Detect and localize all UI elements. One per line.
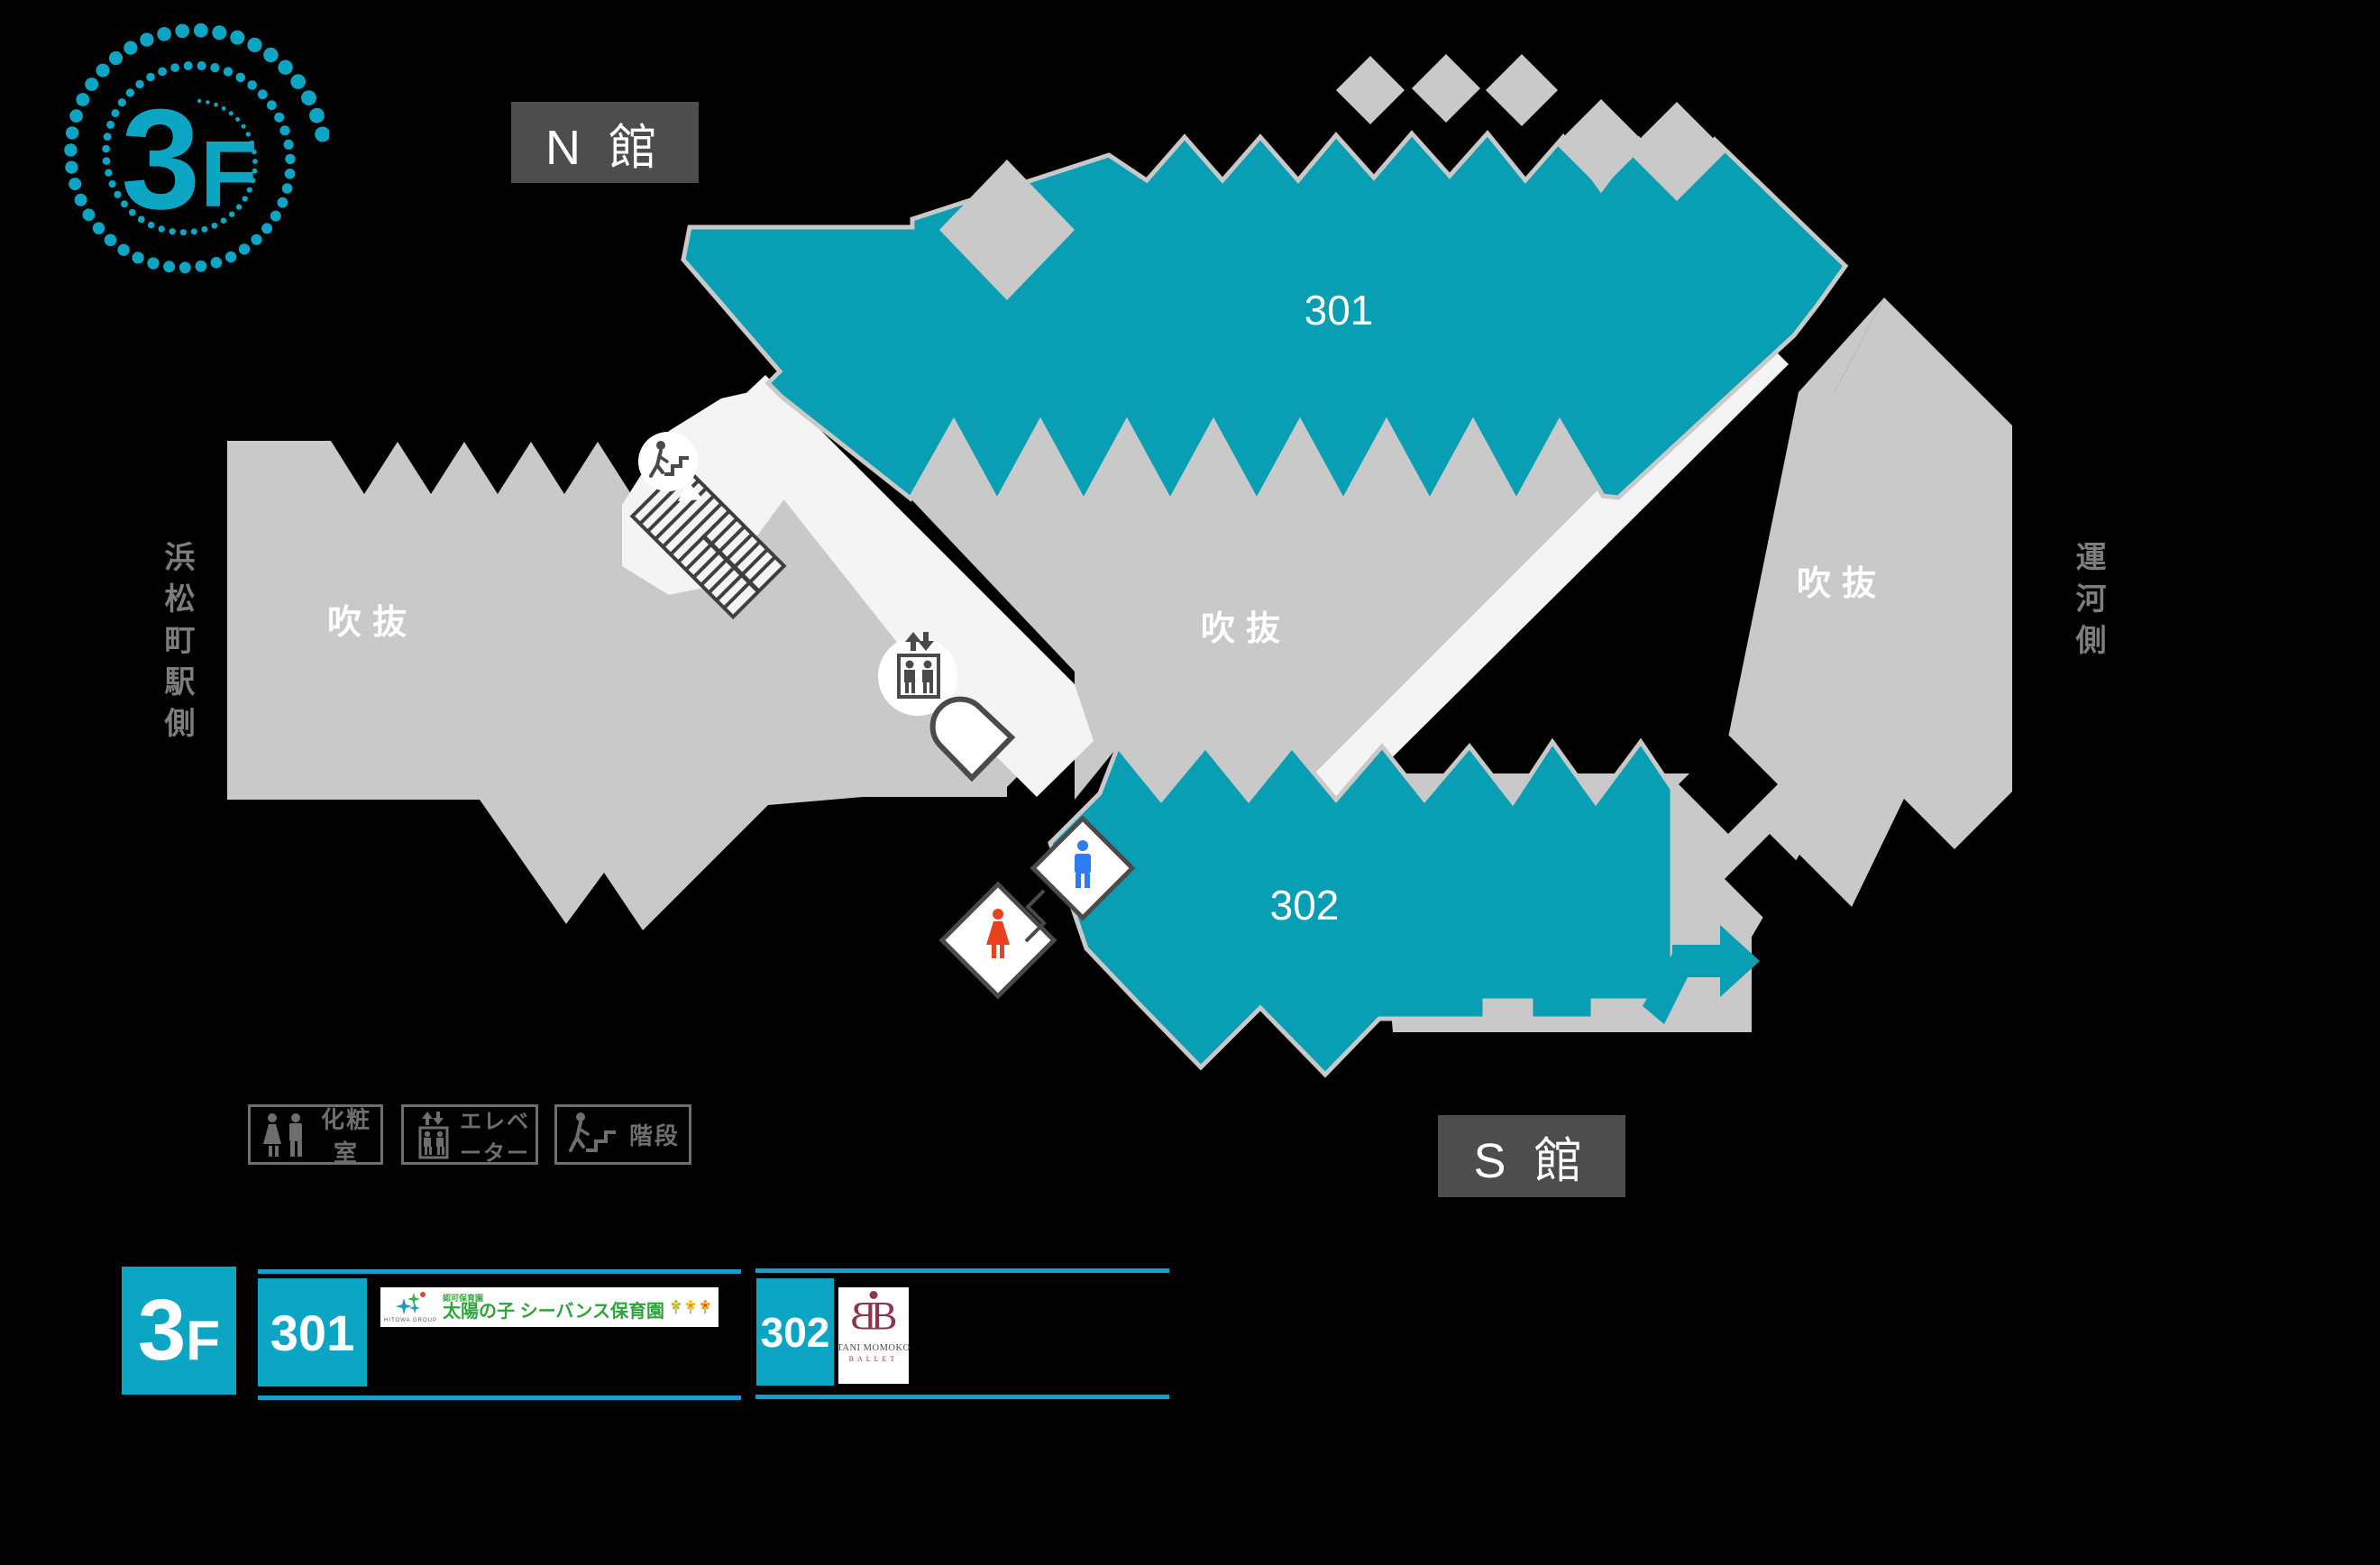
station-side-label: 浜松町駅側 xyxy=(155,541,199,748)
monogram-dot xyxy=(870,1291,878,1299)
directory-floor-suffix: F xyxy=(186,1313,220,1369)
divider xyxy=(258,1396,741,1400)
legend-stairs-label: 階段 xyxy=(620,1118,689,1151)
canal-side-label: 運河側 xyxy=(2066,541,2110,665)
legend-stairs: 階段 xyxy=(554,1104,691,1165)
atrium-right-label: 吹抜 xyxy=(1797,565,1887,603)
hitowa-group-label: HITOWA GROUP xyxy=(384,1318,437,1323)
elevator-icon xyxy=(413,1110,454,1160)
directory-room-302[interactable]: 302 xyxy=(756,1278,834,1386)
directory-room-301[interactable]: 301 xyxy=(258,1278,367,1387)
flower-icon xyxy=(686,1300,695,1313)
nursery-name-label: 太陽の子 シーバンス保育園 xyxy=(443,1303,664,1321)
monogram-left: B xyxy=(850,1293,876,1340)
directory-floor-number: 3 xyxy=(138,1287,186,1374)
nursery-name: 認可保育園 太陽の子 シーバンス保育園 xyxy=(443,1295,664,1321)
floor-badge-digit: 3 xyxy=(121,88,200,231)
floor-badge: 3F xyxy=(50,20,329,299)
sparkle-logo-icon xyxy=(395,1291,427,1318)
floor-guide-page: 吹抜 吹抜 吹抜 301 302 3F N 館 S 館 浜松町駅側 運河側 化粧 xyxy=(0,0,2380,1565)
hitowa-group-logo: HITOWA GROUP xyxy=(384,1291,437,1323)
tenant-logo-302[interactable]: BB TANI MOMOKO BALLET xyxy=(838,1287,909,1384)
room-301-label: 301 xyxy=(1304,287,1374,334)
flower-icons xyxy=(670,1295,715,1319)
diamond-decoration xyxy=(1486,54,1558,126)
divider xyxy=(755,1395,1169,1399)
north-building-label: N 館 xyxy=(511,102,699,183)
flower-icon xyxy=(672,1300,681,1313)
tenant-logo-301[interactable]: HITOWA GROUP 認可保育園 太陽の子 シーバンス保育園 xyxy=(380,1287,719,1327)
directory-floor-badge: 3F xyxy=(122,1267,236,1395)
ballet-monogram: BB xyxy=(849,1293,898,1340)
legend-restroom-label: 化粧室 xyxy=(312,1102,380,1168)
legend-elevator-label: エレベーター xyxy=(454,1103,535,1167)
flower-icon xyxy=(700,1300,709,1313)
room-302-label: 302 xyxy=(1270,882,1340,929)
diamond-decoration xyxy=(1336,56,1405,124)
ballet-name-label: TANI MOMOKO xyxy=(837,1343,910,1353)
legend-restroom: 化粧室 xyxy=(248,1104,383,1165)
divider xyxy=(755,1268,1169,1273)
ballet-subname-label: BALLET xyxy=(849,1355,899,1363)
atrium-center-label: 吹抜 xyxy=(1201,610,1291,648)
divider xyxy=(258,1269,741,1274)
floor-badge-suffix: F xyxy=(200,128,258,222)
stairs-icon xyxy=(566,1111,620,1159)
restroom-icon xyxy=(260,1111,312,1159)
diamond-decoration xyxy=(1412,54,1480,123)
floor-badge-number: 3F xyxy=(50,20,329,299)
legend-elevator: エレベーター xyxy=(401,1104,538,1165)
south-building-label: S 館 xyxy=(1438,1115,1625,1197)
atrium-left-label: 吹抜 xyxy=(327,604,417,642)
